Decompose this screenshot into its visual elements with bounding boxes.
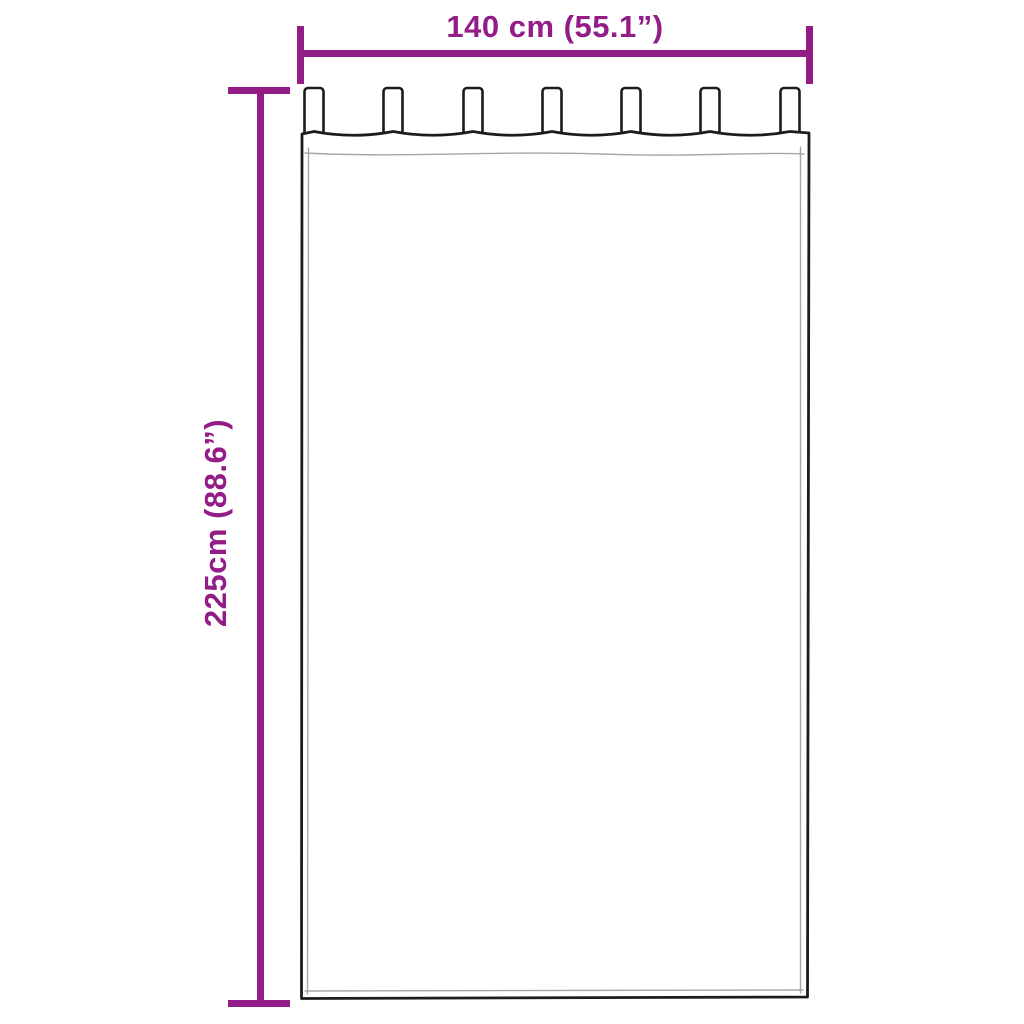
curtain-drawing bbox=[0, 0, 1024, 1024]
curtain-tab bbox=[701, 88, 720, 136]
curtain-tab bbox=[781, 88, 800, 136]
curtain-tabs bbox=[305, 88, 800, 136]
curtain-tab bbox=[305, 88, 324, 136]
curtain-tab bbox=[622, 88, 641, 136]
hem-line-bottom bbox=[305, 990, 803, 991]
curtain-tab bbox=[384, 88, 403, 136]
curtain-dimension-diagram: 140 cm (55.1”) 225cm (88.6”) bbox=[0, 0, 1024, 1024]
curtain-panel bbox=[302, 132, 810, 999]
hem-line-left bbox=[308, 148, 309, 994]
curtain-tab bbox=[543, 88, 562, 136]
curtain-tab bbox=[464, 88, 483, 136]
